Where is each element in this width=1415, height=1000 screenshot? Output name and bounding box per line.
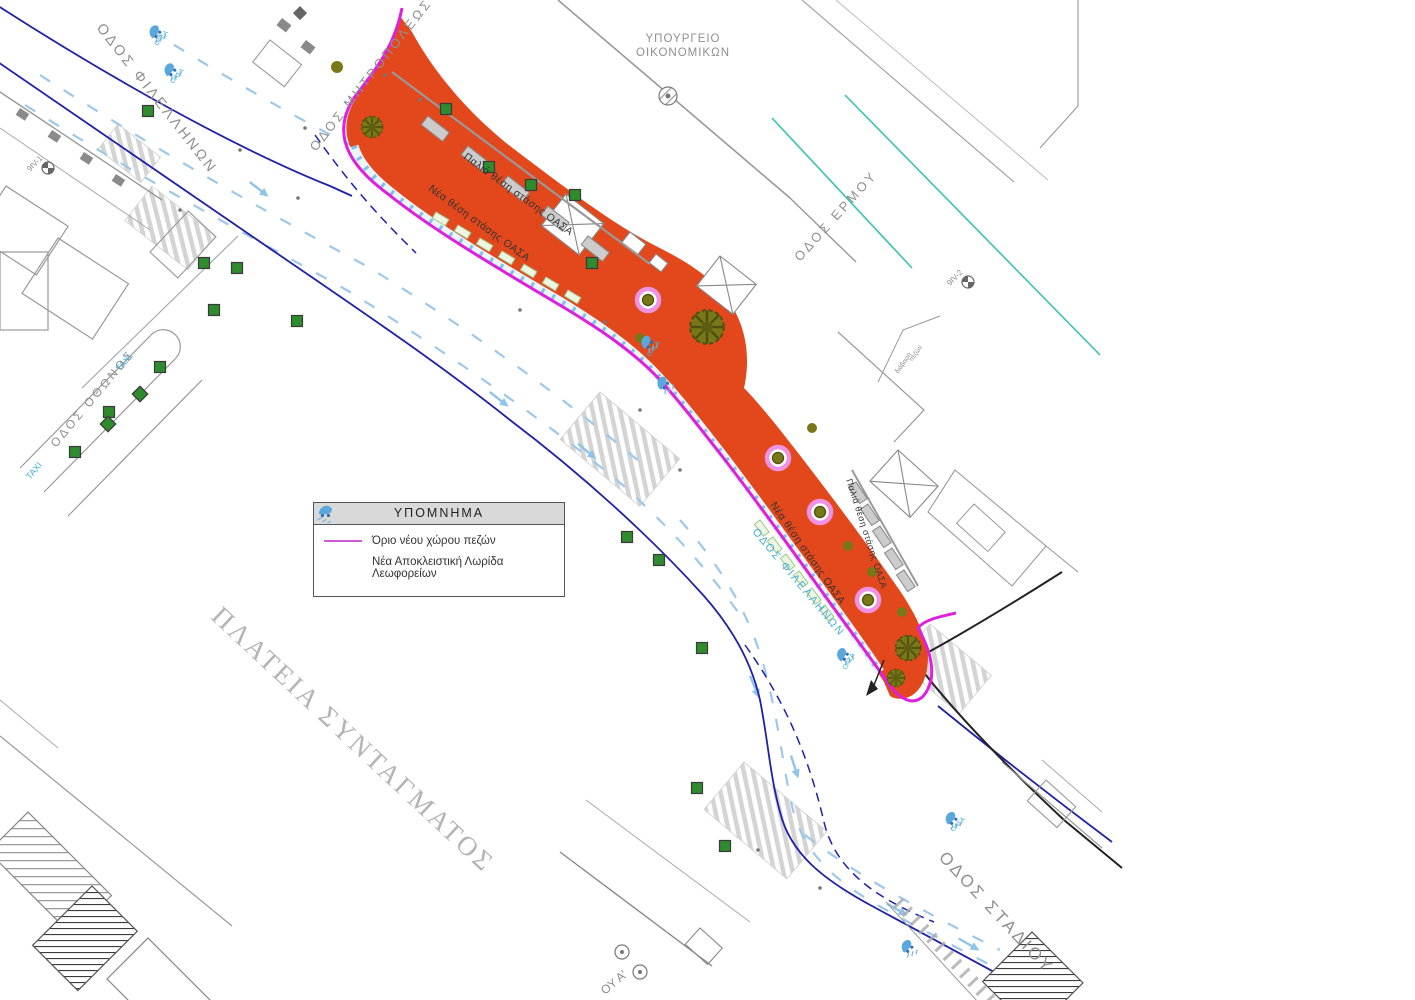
large-tree-icon [361,116,382,137]
buildings-layer [0,0,1102,1000]
traffic-arrow-icon [487,389,511,410]
legend-box: ΥΠΟΜΝΗΜΑ Όριο νέου χώρου πεζών Νέα Αποκλ… [313,502,565,597]
magenta-line-swatch-icon [324,540,362,542]
legend-item-pedestrian-boundary: Όριο νέου χώρου πεζών [324,535,554,547]
square-label-syntagma: ΠΛΑΤΕΙΑ ΣΥΝΤΑΓΜΑΤΟΣ [206,600,501,878]
traffic-arrow-icon [787,754,802,779]
street-label-georgiou-partial: ΟΥ Α' [598,967,630,997]
ringed-tree-icon [637,289,659,311]
taxi-label: TAXI [24,460,44,481]
ringed-tree-icon [767,447,789,469]
street-label-stadiou: ΟΔΟΣ ΣΤΑΔΙΟΥ [935,848,1058,978]
large-tree-icon [896,636,921,661]
traffic-arrow-icon [247,179,271,200]
legend-item-label: Νέα Αποκλειστική Λωρίδα Λεωφορείων [372,556,554,580]
legend-item-bus-lane: Νέα Αποκλειστική Λωρίδα Λεωφορείων [324,556,554,580]
survey-benchmark-icon [962,276,974,288]
survey-benchmark-icon [42,162,54,174]
ringed-tree-icon [809,501,831,523]
bus-icon [898,938,920,960]
legend-item-label: Όριο νέου χώρου πεζών [372,535,496,547]
legend-body: Όριο νέου χώρου πεζών Νέα Αποκλειστική Λ… [314,525,564,596]
large-tree-icon [690,310,724,344]
street-label-ermou: ΟΔΟΣ ΕΡΜΟΥ [791,167,880,264]
ministry-label-line1: ΥΠΟΥΡΓΕΙΟ [645,33,720,45]
site-plan-page: ΟΔΟΣ ΦΙΛΕΛΛΗΝΩΝ ΟΔΟΣ ΜΗΤΡΟΠΟΛΕΩΣ ΥΠΟΥΡΓΕ… [0,0,1415,1000]
urban-plan-canvas: ΟΔΟΣ ΦΙΛΕΛΛΗΝΩΝ ΟΔΟΣ ΜΗΤΡΟΠΟΛΕΩΣ ΥΠΟΥΡΓΕ… [0,0,1415,1000]
ministry-label-line2: ΟΙΚΟΝΟΜΙΚΩΝ [636,47,730,59]
large-tree-icon [887,669,905,687]
bus-lane-swatch-icon [324,558,362,578]
ringed-tree-icon [857,589,879,611]
legend-title: ΥΠΟΜΝΗΜΑ [314,503,564,525]
